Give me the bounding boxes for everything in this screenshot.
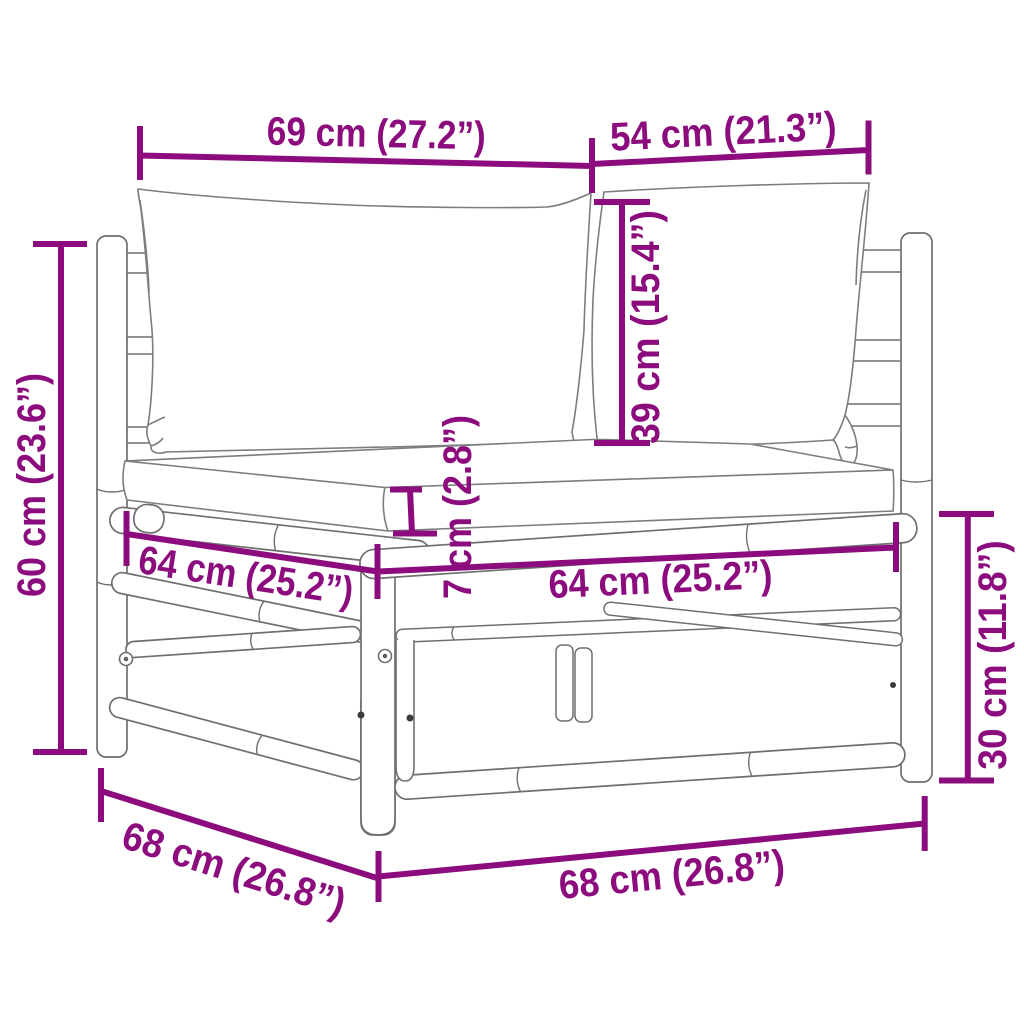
svg-text:39 cm (15.4”): 39 cm (15.4”)	[624, 210, 668, 444]
svg-text:30 cm (11.8”): 30 cm (11.8”)	[971, 540, 1016, 769]
svg-text:60 cm (23.6”): 60 cm (23.6”)	[10, 373, 54, 597]
svg-text:69 cm (27.2”): 69 cm (27.2”)	[266, 108, 486, 158]
